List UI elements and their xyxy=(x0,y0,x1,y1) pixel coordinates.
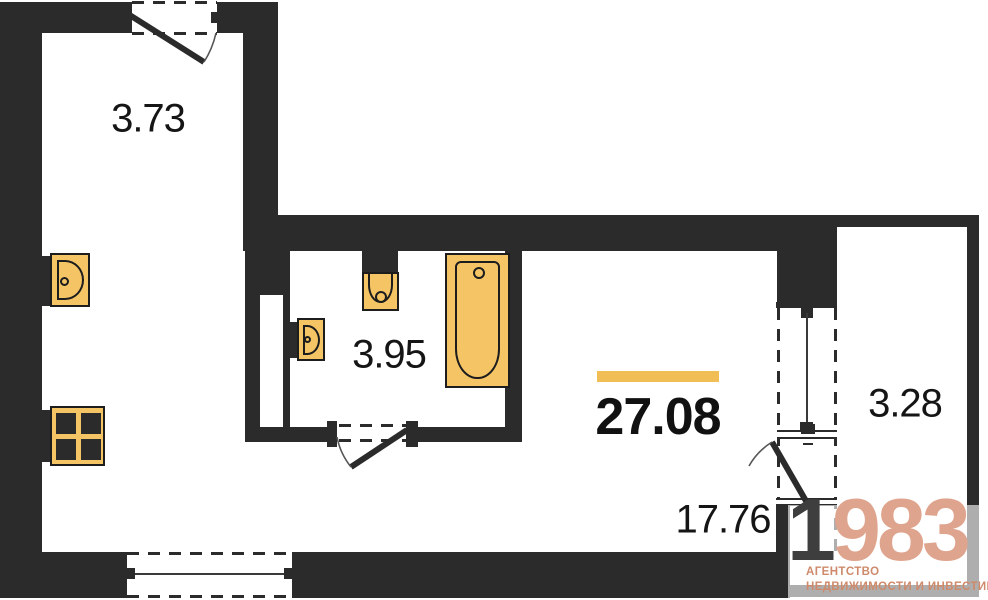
logo-year-suffix: 983 xyxy=(832,480,967,579)
toilet-cistern xyxy=(362,251,398,273)
washbasin-icon xyxy=(297,318,325,361)
hallway-area-label: 3.73 xyxy=(111,97,185,142)
balcony-area-label: 3.28 xyxy=(868,382,942,427)
total-area-label: 27.08 xyxy=(595,387,720,447)
kitchen-sink-icon xyxy=(50,253,90,307)
stove-tab xyxy=(40,410,50,462)
logo-year-prefix: 1 xyxy=(787,480,832,579)
logo-year: 1983 xyxy=(787,494,967,566)
stove-icon xyxy=(50,406,105,466)
bathroom-door-leaf-icon xyxy=(351,430,407,467)
balcony-door-arc-icon xyxy=(749,442,772,466)
logo-tagline-2: НЕДВИЖИМОСТИ И ИНВЕСТИЦИЙ xyxy=(806,581,988,593)
total-area-accent-bar xyxy=(597,371,719,382)
bathroom-area-label: 3.95 xyxy=(352,333,426,378)
living-area-label: 17.76 xyxy=(675,498,770,543)
logo-tagline-1: АГЕНТСТВО xyxy=(806,566,879,578)
kitchen-sink-tab xyxy=(40,256,50,306)
entrance-door-leaf-icon xyxy=(128,14,204,62)
toilet-icon xyxy=(362,272,399,311)
bathtub-icon xyxy=(445,253,510,388)
floor-plan: 3.73 3.95 27.08 17.76 3.28 1983 АГЕНТСТВ… xyxy=(0,0,988,600)
bathroom-door-arc-icon xyxy=(337,437,351,467)
entrance-door-arc-icon xyxy=(204,33,216,62)
